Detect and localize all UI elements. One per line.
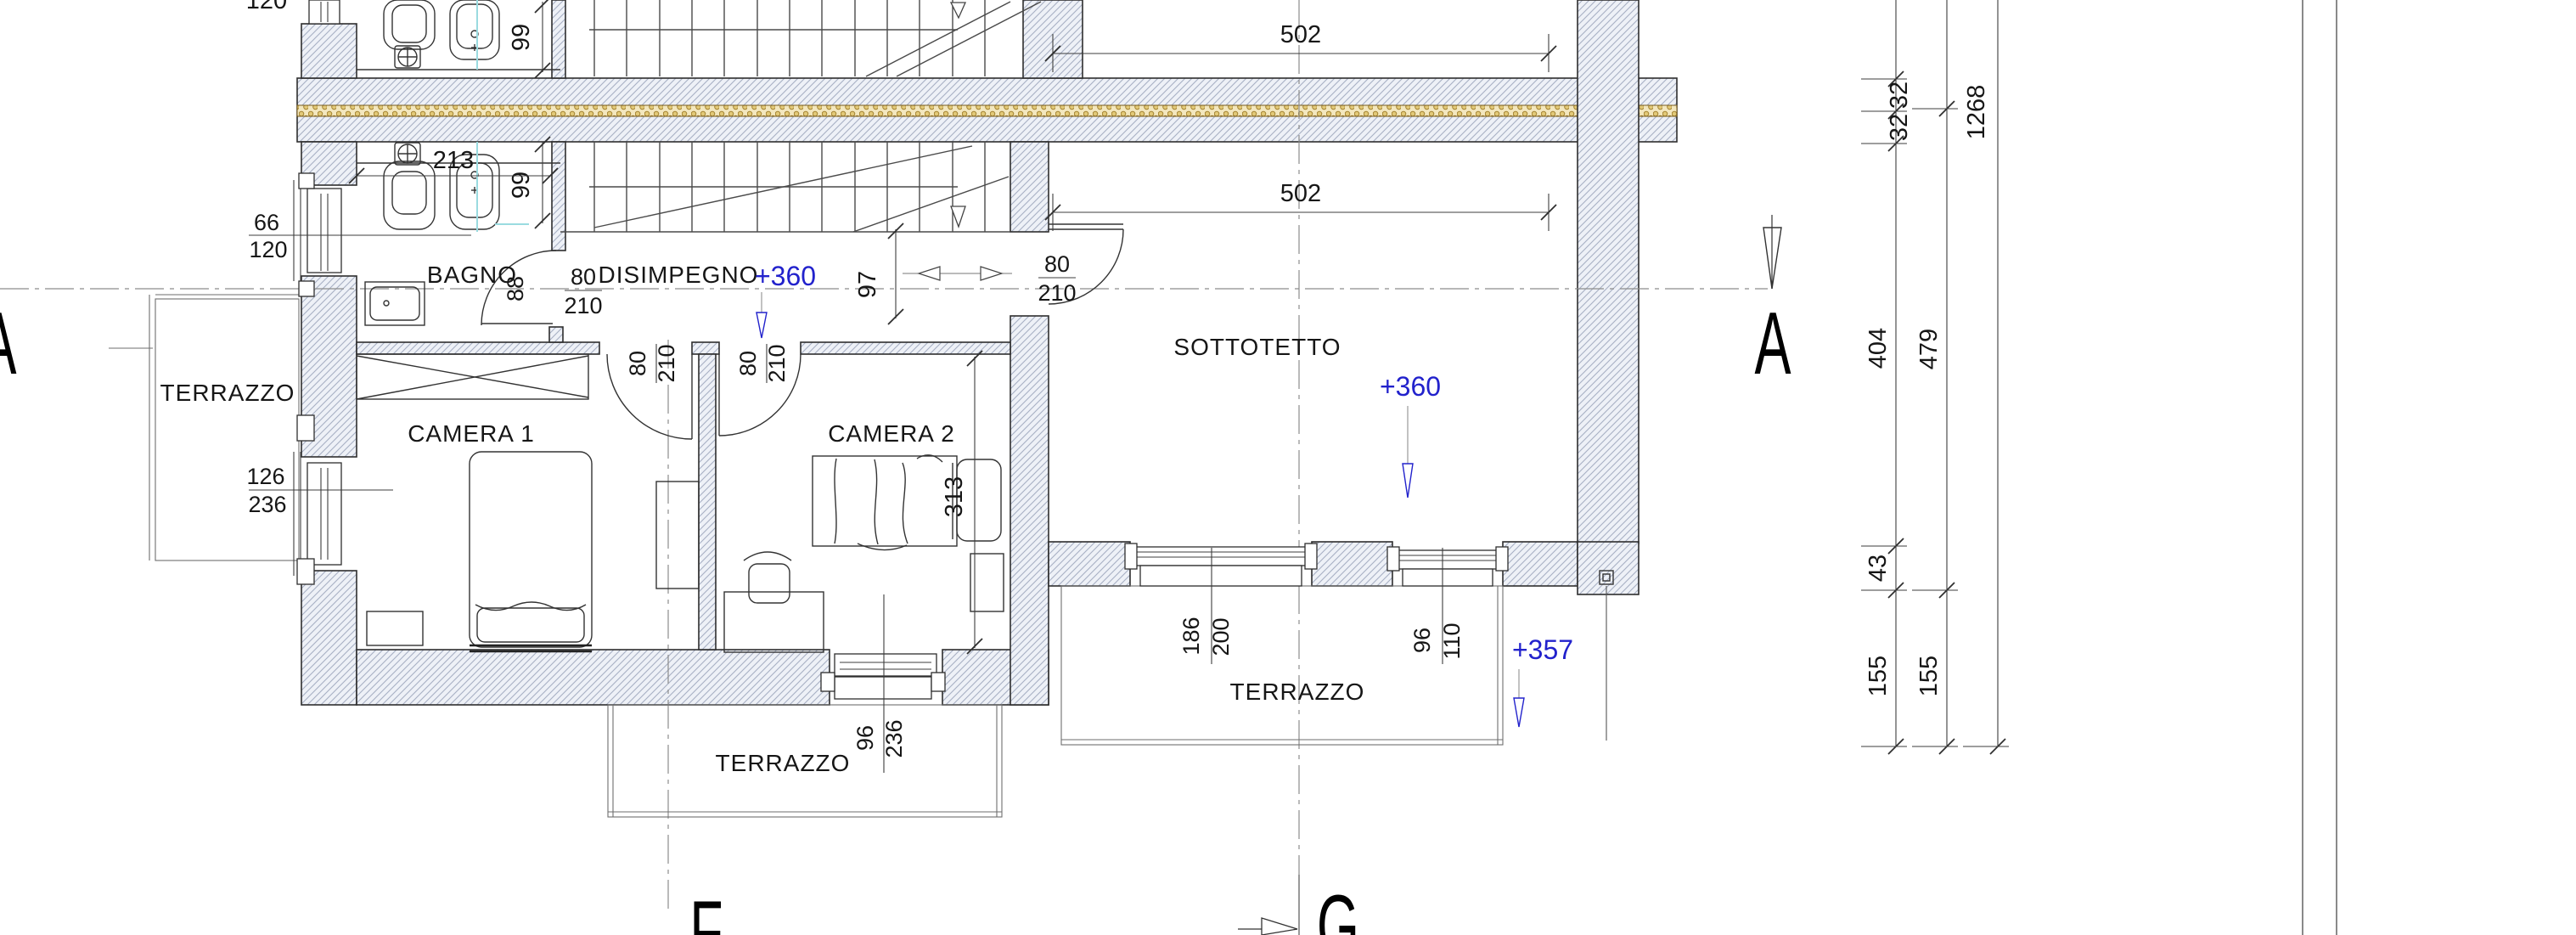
page-edge-lines: [2303, 0, 2337, 935]
label-bagno: BAGNO: [427, 262, 517, 288]
partition-hall-b: [801, 342, 1010, 354]
window-sottotetto-1: [1125, 544, 1317, 586]
label-terrazzo-left: TERRAZZO: [160, 380, 295, 406]
label-terrazzo-right: TERRAZZO: [1230, 679, 1365, 705]
label-terrazzo-mid: TERRAZZO: [716, 750, 851, 776]
partition-camera: [699, 354, 716, 650]
wall-sottotetto-bottom-c: [1503, 542, 1578, 586]
window-bagno-upper: [309, 0, 340, 24]
dim-top-partial: 120: [246, 0, 287, 14]
wall-sottotetto-bottom-a: [1049, 542, 1130, 586]
wall-right-outer: [1578, 0, 1639, 544]
dim-chain-404: 404: [1865, 328, 1892, 369]
dim-sottotetto-door-w: 80: [1044, 251, 1070, 277]
elevation-terrazzo: +357: [1512, 634, 1573, 665]
terrazzo-left: [109, 295, 299, 560]
bed-camera2: [813, 455, 1001, 550]
nightstand-camera2: [970, 554, 1004, 611]
desk-camera1: [656, 482, 699, 589]
toilet-upper: [384, 0, 435, 68]
bed-camera1: [470, 452, 592, 651]
label-disimpegno: DISIMPEGNO: [599, 262, 759, 288]
partition-hall-a: [357, 342, 599, 354]
dim-terrazzo-window1-w: 186: [1178, 617, 1204, 655]
dim-bagno-window-w: 66: [254, 210, 279, 235]
arrow-left-icon: [919, 267, 940, 280]
bidet-upper: [450, 0, 499, 59]
dim-hall-door-h: 210: [564, 293, 602, 318]
dim-hall-door-w: 80: [571, 264, 596, 290]
dim-terrazzo-window2-h: 110: [1439, 622, 1465, 659]
wall-sottotetto-left-a: [1010, 142, 1049, 232]
section-letter-a-left: A: [0, 295, 17, 392]
dim-chain-43: 43: [1865, 555, 1892, 582]
dim-camera1-door-h: 210: [654, 344, 679, 382]
dim-camera2-door-w: 80: [735, 351, 761, 376]
dim-camera1-door-w: 80: [625, 351, 650, 376]
arrow-right-icon: [981, 267, 1002, 280]
floor-plan-drawing: 502 502 99 99 213 120 66 120 126 236 88 …: [0, 0, 2576, 935]
dim-camera2-window-w: 96: [852, 725, 878, 751]
dim-chain-total: 1268: [1963, 85, 1990, 140]
elevation-arrow-icon: [1514, 698, 1524, 727]
dim-camera2-window-h: 236: [881, 719, 907, 758]
dim-camera1-window-h: 236: [248, 492, 286, 517]
axis-letter-g: G: [1317, 877, 1359, 935]
section-letter-a-right: A: [1754, 295, 1791, 392]
dim-room-top-width: 502: [1280, 21, 1321, 48]
dimension-chain-right: 32 32 1268 404 479 43 155 155: [1861, 0, 2009, 754]
elevation-arrow-icon: [1403, 464, 1413, 498]
wall-corner-right: [1578, 542, 1639, 594]
dim-terrazzo-window2-w: 96: [1409, 628, 1435, 653]
wall-left-3: [301, 571, 357, 705]
hall-section-arrows: [903, 267, 1012, 280]
window-camera2: [821, 654, 945, 699]
label-camera2: CAMERA 2: [828, 420, 955, 447]
dim-camera2-depth: 313: [941, 476, 968, 517]
dim-hall-width: 97: [854, 271, 881, 298]
dim-chain-155a: 155: [1865, 656, 1892, 696]
partition-bagno-stair: [552, 142, 565, 251]
dim-terrazzo-window1-h: 200: [1208, 617, 1234, 656]
chair-camera2: [744, 552, 791, 603]
dim-chain-479: 479: [1915, 329, 1943, 369]
dim-bagno-fixture-run: 213: [433, 147, 474, 174]
wardrobe-camera1: [357, 354, 588, 399]
wall-sottotetto-left-b: [1010, 316, 1049, 705]
door-jamb-bagno: [549, 327, 563, 342]
toilet: [384, 143, 435, 229]
desk-camera2: [724, 592, 824, 652]
label-camera1: CAMERA 1: [408, 420, 535, 447]
dim-sottotetto-door-h: 210: [1038, 280, 1076, 306]
wall-left-upper: [301, 24, 357, 78]
axis-letter-f: F: [689, 883, 723, 935]
elevation-sottotetto: +360: [1380, 371, 1441, 402]
dim-chain-32b: 32: [1886, 114, 1913, 141]
dim-chain-155b: 155: [1915, 656, 1943, 696]
dim-chain-32a: 32: [1886, 82, 1913, 109]
elevation-disimpegno: +360: [755, 261, 816, 291]
elevation-arrow-icon: [756, 313, 767, 338]
dim-bagno-upper-depth: 99: [508, 24, 535, 51]
wall-sottotetto-bottom-b: [1312, 542, 1392, 586]
staircase-lower: [560, 142, 1010, 232]
dim-camera2-door-h: 210: [764, 344, 790, 382]
staircase-upper: [589, 0, 1041, 76]
floor-plan-canvas: 502 502 99 99 213 120 66 120 126 236 88 …: [0, 0, 2576, 935]
dim-sottotetto-width: 502: [1280, 180, 1321, 207]
partition-hall-pier: [692, 342, 719, 354]
rug-camera1: [367, 611, 423, 645]
axis-arrow-g-icon: [1262, 918, 1297, 935]
walls: [297, 0, 1677, 705]
dim-camera1-window-w: 126: [246, 464, 284, 489]
partition-bagno-stair-upper: [552, 0, 565, 78]
label-sottotetto: SOTTOTETTO: [1173, 334, 1341, 360]
window-sottotetto-2: [1387, 547, 1508, 586]
insulation-strip: [297, 105, 1677, 116]
dim-bagno-window-h: 120: [249, 237, 287, 262]
wall-bottom-1: [357, 650, 830, 705]
